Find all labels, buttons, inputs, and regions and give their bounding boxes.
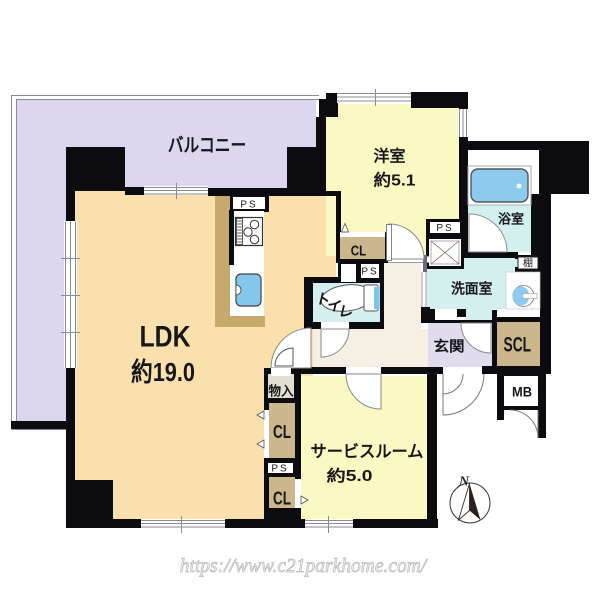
svg-text:サービスルーム: サービスルーム bbox=[311, 442, 424, 461]
svg-text:浴室: 浴室 bbox=[498, 212, 524, 227]
svg-text:洗面室: 洗面室 bbox=[451, 280, 493, 298]
svg-text:PS: PS bbox=[361, 267, 378, 278]
svg-text:バルコニー: バルコニー bbox=[168, 135, 247, 157]
svg-text:MB: MB bbox=[512, 384, 532, 400]
svg-text:約5.0: 約5.0 bbox=[327, 466, 373, 485]
svg-text:約19.0: 約19.0 bbox=[131, 357, 195, 387]
svg-text:PS: PS bbox=[271, 464, 288, 475]
svg-text:https://www.c21parkhome.com/: https://www.c21parkhome.com/ bbox=[180, 556, 428, 577]
svg-text:約5.1: 約5.1 bbox=[374, 171, 416, 190]
svg-text:PS: PS bbox=[436, 223, 453, 234]
svg-text:棚: 棚 bbox=[523, 257, 533, 270]
svg-text:CL: CL bbox=[273, 422, 291, 442]
svg-text:CL: CL bbox=[273, 489, 291, 509]
svg-text:PS: PS bbox=[240, 200, 257, 211]
svg-text:玄関: 玄関 bbox=[434, 338, 465, 356]
svg-text:LDK: LDK bbox=[140, 321, 191, 354]
svg-text:N: N bbox=[458, 475, 470, 490]
svg-text:物入: 物入 bbox=[269, 384, 294, 399]
svg-text:CL: CL bbox=[351, 243, 367, 260]
svg-text:洋室: 洋室 bbox=[374, 147, 406, 166]
svg-text:SCL: SCL bbox=[504, 334, 532, 357]
